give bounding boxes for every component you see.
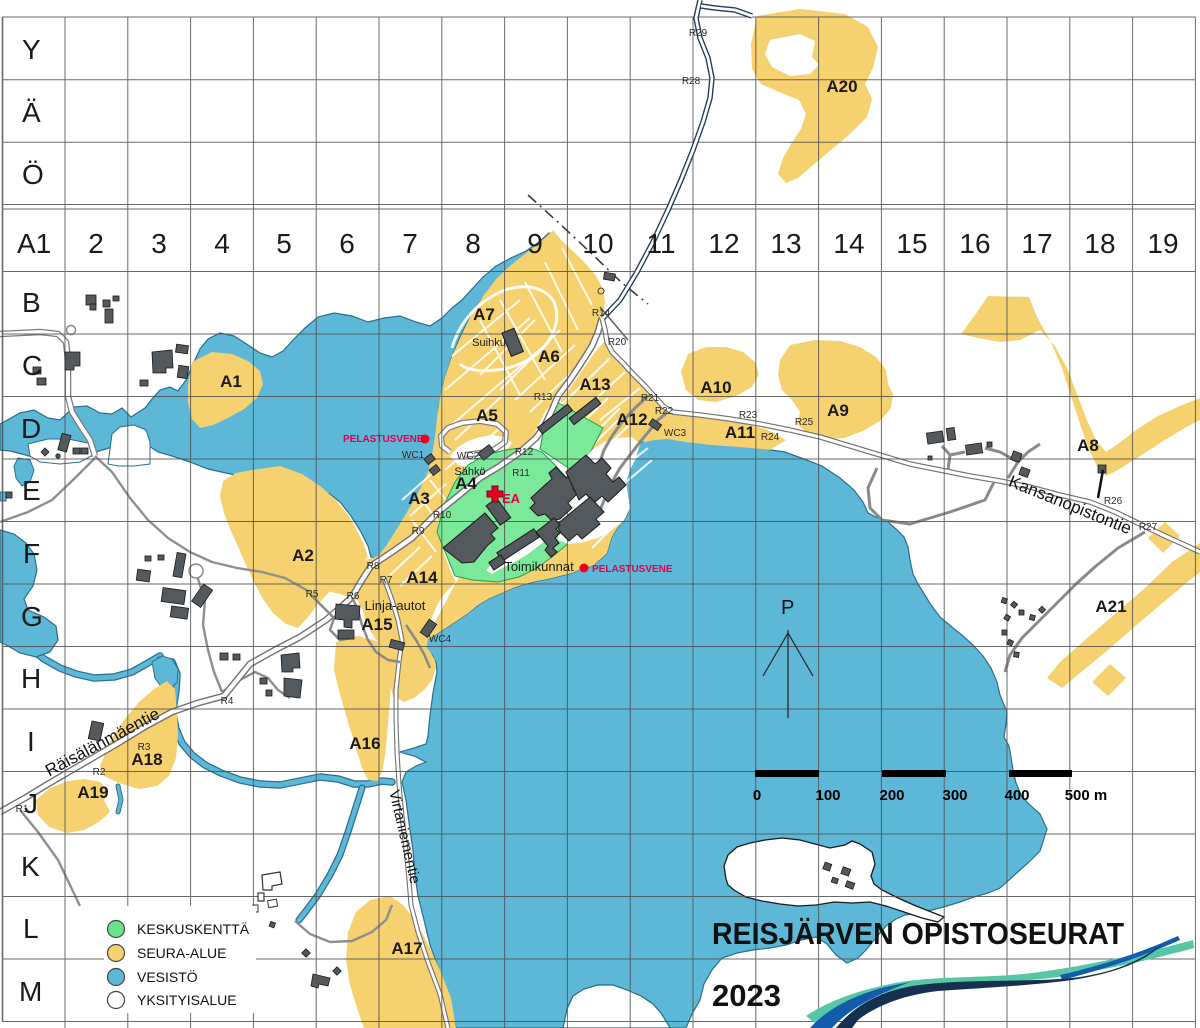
svg-text:VESISTÖ: VESISTÖ (137, 968, 198, 985)
svg-text:R28: R28 (682, 76, 701, 87)
svg-text:Suihku: Suihku (472, 337, 506, 349)
svg-text:8: 8 (465, 228, 481, 259)
svg-text:16: 16 (959, 228, 990, 259)
svg-text:19: 19 (1147, 228, 1178, 259)
svg-text:R22: R22 (655, 406, 674, 417)
svg-text:A5: A5 (476, 406, 498, 425)
svg-text:300: 300 (942, 787, 967, 804)
svg-text:A3: A3 (408, 489, 430, 508)
svg-text:A10: A10 (700, 378, 731, 397)
svg-text:WC1: WC1 (402, 450, 425, 461)
svg-text:WC4: WC4 (429, 634, 452, 645)
svg-text:R3: R3 (138, 742, 151, 753)
svg-text:5: 5 (276, 228, 292, 259)
svg-text:2023: 2023 (712, 978, 781, 1013)
svg-text:A17: A17 (391, 939, 422, 958)
svg-text:E: E (22, 475, 41, 506)
svg-text:14: 14 (833, 228, 864, 259)
svg-text:A8: A8 (1077, 436, 1099, 455)
svg-text:200: 200 (879, 787, 904, 804)
svg-text:9: 9 (527, 228, 543, 259)
svg-text:H: H (21, 663, 41, 694)
svg-text:Ä: Ä (22, 97, 41, 128)
svg-text:A20: A20 (826, 77, 857, 96)
svg-text:R11: R11 (512, 468, 530, 479)
svg-text:P: P (781, 597, 794, 619)
svg-text:A12: A12 (616, 410, 647, 429)
svg-text:YKSITYISALUE: YKSITYISALUE (137, 992, 237, 1008)
svg-text:R2: R2 (93, 767, 106, 778)
svg-text:Sähkö: Sähkö (454, 466, 485, 478)
svg-text:R6: R6 (347, 591, 360, 602)
svg-text:A2: A2 (292, 546, 314, 565)
svg-text:Linja-autot: Linja-autot (365, 598, 426, 613)
svg-text:C: C (22, 350, 42, 381)
svg-text:A21: A21 (1095, 597, 1126, 616)
svg-text:R1: R1 (16, 804, 29, 815)
svg-text:11: 11 (646, 228, 675, 259)
svg-text:REISJÄRVEN OPISTOSEURAT: REISJÄRVEN OPISTOSEURAT (712, 916, 1124, 951)
svg-text:A9: A9 (827, 401, 849, 420)
svg-text:R9: R9 (412, 526, 425, 537)
svg-text:A15: A15 (361, 615, 392, 634)
svg-text:6: 6 (339, 228, 355, 259)
svg-text:400: 400 (1004, 787, 1029, 804)
svg-text:R14: R14 (592, 308, 611, 319)
svg-text:R12: R12 (515, 447, 534, 458)
svg-text:R13: R13 (534, 392, 553, 403)
svg-text:KESKUSKENTTÄ: KESKUSKENTTÄ (137, 921, 250, 937)
svg-text:15: 15 (896, 228, 927, 259)
svg-text:R21: R21 (641, 393, 660, 404)
svg-text:R23: R23 (739, 410, 758, 421)
svg-text:PELASTUSVENE: PELASTUSVENE (592, 564, 673, 575)
svg-text:R25: R25 (795, 417, 814, 428)
svg-text:Toimikunnat: Toimikunnat (504, 559, 574, 574)
svg-text:WC2: WC2 (457, 451, 480, 462)
svg-text:Y: Y (22, 34, 41, 65)
svg-text:M: M (19, 976, 42, 1007)
svg-text:F: F (23, 538, 40, 569)
svg-text:SEURA-ALUE: SEURA-ALUE (137, 945, 226, 961)
svg-text:Ö: Ö (22, 159, 44, 190)
svg-text:A14: A14 (406, 568, 438, 587)
svg-text:13: 13 (770, 228, 801, 259)
svg-text:2: 2 (88, 228, 104, 259)
svg-text:A13: A13 (579, 375, 610, 394)
svg-text:12: 12 (708, 228, 739, 259)
svg-text:G: G (21, 601, 43, 632)
svg-text:A16: A16 (349, 734, 380, 753)
svg-text:A7: A7 (473, 305, 495, 324)
svg-text:18: 18 (1084, 228, 1115, 259)
svg-text:K: K (21, 851, 40, 882)
svg-text:100: 100 (815, 787, 840, 804)
svg-text:R5: R5 (306, 589, 319, 600)
svg-text:4: 4 (214, 228, 230, 259)
svg-text:A19: A19 (77, 783, 108, 802)
svg-text:17: 17 (1021, 228, 1052, 259)
svg-text:R20: R20 (608, 337, 627, 348)
svg-text:7: 7 (402, 228, 418, 259)
svg-text:R27: R27 (1139, 522, 1158, 533)
svg-text:0: 0 (753, 787, 761, 804)
svg-text:A1: A1 (220, 372, 242, 391)
svg-text:R29: R29 (689, 28, 708, 39)
svg-text:R7: R7 (380, 575, 393, 586)
svg-text:R10: R10 (433, 510, 452, 521)
svg-text:PELASTUSVENE: PELASTUSVENE (343, 434, 424, 445)
svg-text:R4: R4 (221, 696, 234, 707)
svg-text:R26: R26 (1104, 496, 1123, 507)
svg-text:D: D (21, 413, 41, 444)
svg-text:EA: EA (502, 491, 521, 506)
svg-text:A6: A6 (538, 347, 560, 366)
svg-text:I: I (27, 726, 35, 757)
svg-text:L: L (23, 913, 39, 944)
svg-text:R24: R24 (761, 432, 780, 443)
svg-text:500 m: 500 m (1065, 787, 1108, 804)
svg-text:B: B (22, 287, 41, 318)
svg-text:10: 10 (582, 228, 613, 259)
svg-text:3: 3 (151, 228, 167, 259)
svg-text:WC3: WC3 (664, 428, 687, 439)
svg-text:A11: A11 (725, 423, 755, 442)
svg-text:R8: R8 (367, 561, 380, 572)
svg-text:A1: A1 (17, 228, 51, 259)
